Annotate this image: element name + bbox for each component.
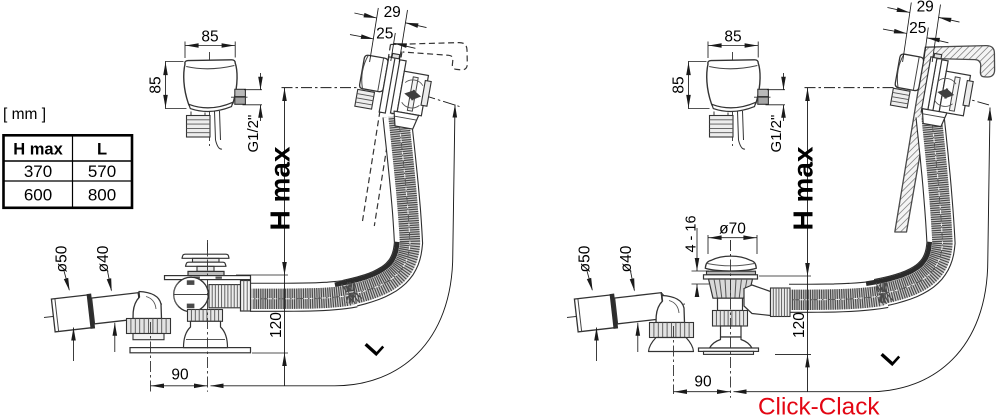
svg-text:H max: H max: [788, 146, 819, 230]
svg-text:29: 29: [384, 4, 401, 21]
svg-text:90: 90: [694, 374, 712, 391]
svg-text:570: 570: [88, 162, 116, 181]
svg-text:25: 25: [909, 20, 926, 37]
svg-text:ø50: ø50: [54, 245, 71, 272]
svg-text:600: 600: [24, 186, 52, 205]
svg-text:29: 29: [917, 0, 934, 16]
svg-text:120: 120: [791, 312, 808, 338]
svg-text:ø40: ø40: [618, 245, 635, 272]
svg-text:85: 85: [201, 29, 218, 46]
svg-text:4 - 16: 4 - 16: [684, 215, 700, 252]
svg-text:25: 25: [376, 25, 393, 42]
svg-text:G1/2": G1/2": [245, 115, 262, 153]
svg-text:Click-Clack: Click-Clack: [758, 394, 880, 416]
svg-text:L: L: [97, 141, 107, 159]
svg-text:H max: H max: [13, 141, 63, 159]
svg-text:ø40: ø40: [95, 245, 112, 272]
svg-text:800: 800: [88, 186, 116, 205]
svg-text:H max: H max: [265, 146, 296, 230]
svg-text:120: 120: [268, 312, 285, 338]
svg-text:370: 370: [24, 162, 52, 181]
svg-text:85: 85: [148, 76, 165, 93]
svg-text:85: 85: [724, 29, 741, 46]
svg-text:[ mm ]: [ mm ]: [3, 106, 46, 123]
svg-text:ø70: ø70: [719, 221, 746, 238]
svg-text:ø50: ø50: [577, 245, 594, 272]
svg-text:G1/2": G1/2": [768, 115, 785, 153]
svg-text:90: 90: [171, 366, 189, 383]
svg-text:85: 85: [671, 76, 688, 93]
